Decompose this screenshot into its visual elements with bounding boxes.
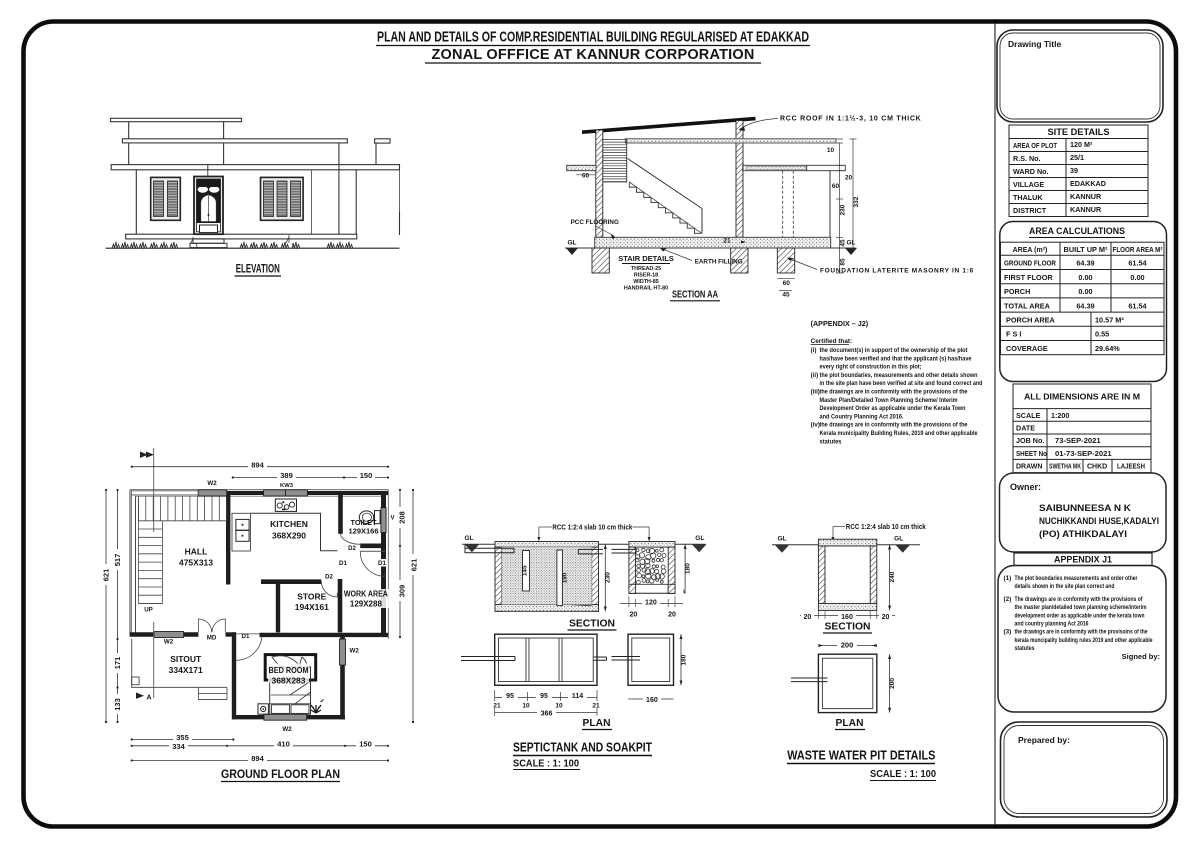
svg-text:AREA OF PLOT: AREA OF PLOT bbox=[1013, 141, 1057, 150]
svg-text:HALL: HALL bbox=[185, 547, 208, 557]
svg-text:details shown in the site plan: details shown in the site plan correct a… bbox=[1015, 583, 1115, 590]
svg-text:WASTE WATER PIT DETAILS: WASTE WATER PIT DETAILS bbox=[787, 749, 935, 763]
svg-text:WARD No.: WARD No. bbox=[1013, 167, 1049, 176]
svg-text:W2: W2 bbox=[282, 726, 292, 733]
svg-text:(3): (3) bbox=[1004, 629, 1012, 636]
svg-text:F S I: F S I bbox=[1006, 330, 1021, 339]
svg-text:1:200: 1:200 bbox=[1051, 411, 1069, 420]
svg-text:171: 171 bbox=[113, 657, 122, 670]
svg-text:SAIBUNNEESA N K: SAIBUNNEESA N K bbox=[1039, 503, 1131, 514]
svg-text:410: 410 bbox=[277, 739, 290, 748]
svg-text:150: 150 bbox=[359, 739, 372, 748]
svg-text:A: A bbox=[146, 695, 151, 702]
svg-text:SECTION AA: SECTION AA bbox=[672, 290, 718, 301]
svg-text:(1): (1) bbox=[1004, 575, 1012, 582]
svg-text:ELEVATION: ELEVATION bbox=[236, 264, 280, 276]
svg-text:WORK AREA: WORK AREA bbox=[344, 590, 388, 599]
svg-text:GL: GL bbox=[894, 536, 903, 543]
svg-text:73-SEP-2021: 73-SEP-2021 bbox=[1055, 436, 1101, 445]
svg-text:the document(s) in support of: the document(s) in support of the owners… bbox=[820, 347, 968, 354]
svg-text:D2: D2 bbox=[348, 546, 356, 552]
svg-text:KANNUR: KANNUR bbox=[1070, 205, 1102, 214]
svg-text:GL: GL bbox=[695, 535, 704, 542]
svg-text:the drawings are in conformity: the drawings are in conformity with the … bbox=[1015, 629, 1148, 636]
svg-text:HANDRAIL HT-80: HANDRAIL HT-80 bbox=[624, 286, 668, 292]
svg-text:ZONAL OFFFICE AT KANNUR CORPO: ZONAL OFFFICE AT KANNUR CORPORATION bbox=[431, 47, 754, 63]
svg-text:GL: GL bbox=[567, 240, 576, 247]
svg-text:334X171: 334X171 bbox=[169, 665, 203, 675]
svg-text:Prepared by:: Prepared by: bbox=[1018, 735, 1070, 745]
svg-text:kerala muncipality building ru: kerala muncipality building rules 2019 a… bbox=[1015, 637, 1153, 644]
svg-text:V: V bbox=[391, 516, 395, 522]
svg-text:in the site plan have been ver: in the site plan have been verified at s… bbox=[820, 380, 983, 387]
svg-text:RCC 1:2:4 slab 10 cm thick: RCC 1:2:4 slab 10 cm thick bbox=[846, 524, 926, 531]
svg-text:64.39: 64.39 bbox=[1076, 259, 1094, 268]
svg-text:180: 180 bbox=[684, 563, 691, 574]
svg-text:Certified that:: Certified that: bbox=[811, 338, 853, 345]
svg-text:PCC FLOORING: PCC FLOORING bbox=[571, 219, 619, 226]
svg-text:366: 366 bbox=[541, 711, 553, 718]
svg-text:309: 309 bbox=[398, 585, 407, 598]
svg-text:JOB No.: JOB No. bbox=[1016, 436, 1044, 445]
svg-text:KITCHEN: KITCHEN bbox=[270, 519, 308, 529]
svg-text:CHKD: CHKD bbox=[1087, 464, 1107, 471]
svg-text:SEPTICTANK AND SOAKPIT: SEPTICTANK AND SOAKPIT bbox=[513, 741, 652, 755]
svg-text:21: 21 bbox=[493, 703, 501, 710]
svg-text:and Country Planning Act 2016.: and Country Planning Act 2016. bbox=[820, 413, 904, 420]
svg-text:the drawings are in conformity: the drawings are in conformity with the … bbox=[820, 422, 968, 429]
svg-text:FIRST FLOOR: FIRST FLOOR bbox=[1004, 273, 1053, 282]
svg-text:EARTH FILLING: EARTH FILLING bbox=[695, 259, 743, 266]
svg-text:STORE: STORE bbox=[297, 592, 326, 602]
svg-text:0.55: 0.55 bbox=[1095, 330, 1109, 339]
svg-text:10: 10 bbox=[555, 703, 563, 710]
svg-text:PLAN: PLAN bbox=[836, 717, 864, 729]
svg-text:Kerala municipality Building R: Kerala municipality Building Rules, 2019… bbox=[820, 430, 978, 437]
svg-text:894: 894 bbox=[251, 461, 264, 470]
svg-text:W2: W2 bbox=[207, 480, 217, 487]
svg-text:200: 200 bbox=[889, 678, 896, 689]
svg-text:20: 20 bbox=[845, 175, 853, 182]
svg-text:Drawing Title: Drawing Title bbox=[1008, 39, 1061, 49]
svg-text:W2: W2 bbox=[350, 648, 360, 655]
svg-text:SECTION: SECTION bbox=[569, 618, 615, 630]
svg-text:R.S. No.: R.S. No. bbox=[1013, 154, 1041, 163]
svg-text:621: 621 bbox=[102, 569, 111, 582]
svg-text:0.00: 0.00 bbox=[1078, 273, 1092, 282]
svg-text:20: 20 bbox=[630, 612, 638, 619]
svg-text:TOTAL AREA: TOTAL AREA bbox=[1004, 301, 1051, 310]
svg-text:45: 45 bbox=[840, 239, 847, 247]
svg-text:NUCHIKKANDI HUSE,KADALYI: NUCHIKKANDI HUSE,KADALYI bbox=[1039, 516, 1159, 527]
svg-text:60: 60 bbox=[783, 280, 791, 287]
svg-text:20: 20 bbox=[804, 614, 812, 621]
svg-text:DRAWN: DRAWN bbox=[1016, 464, 1042, 471]
svg-text:129X288: 129X288 bbox=[350, 600, 383, 609]
svg-text:190: 190 bbox=[562, 572, 569, 583]
svg-text:208: 208 bbox=[398, 511, 407, 524]
svg-text:240: 240 bbox=[889, 571, 896, 582]
svg-text:COVERAGE: COVERAGE bbox=[1006, 344, 1048, 353]
svg-text:517: 517 bbox=[113, 554, 122, 567]
svg-text:200: 200 bbox=[841, 640, 854, 649]
svg-text:AREA (m²): AREA (m²) bbox=[1013, 247, 1048, 254]
svg-text:FLOOR AREA M²: FLOOR AREA M² bbox=[1113, 247, 1164, 254]
svg-text:45: 45 bbox=[782, 292, 790, 299]
svg-text:Master Plan/Detailed Town Plan: Master Plan/Detailed Town Planning Schem… bbox=[820, 397, 958, 404]
svg-text:the drawings are in conformity: the drawings are in conformity with the … bbox=[820, 389, 968, 396]
svg-text:GROUND FLOOR PLAN: GROUND FLOOR PLAN bbox=[221, 767, 340, 781]
svg-text:RCC ROOF IN 1:1½-3, 10 CM THIC: RCC ROOF IN 1:1½-3, 10 CM THICK bbox=[780, 115, 922, 123]
svg-text:SECTION: SECTION bbox=[825, 621, 871, 633]
svg-text:STAIR DETAILS: STAIR DETAILS bbox=[618, 254, 674, 263]
svg-text:20: 20 bbox=[668, 612, 676, 619]
svg-text:21: 21 bbox=[592, 703, 600, 710]
svg-text:BED ROOM: BED ROOM bbox=[269, 665, 309, 675]
svg-text:SCALE : 1: 100: SCALE : 1: 100 bbox=[870, 768, 936, 780]
svg-text:PLAN AND DETAILS OF COMP.RESID: PLAN AND DETAILS OF COMP.RESIDENTIAL BUI… bbox=[377, 29, 809, 46]
svg-text:D1: D1 bbox=[378, 560, 386, 567]
svg-text:D1: D1 bbox=[339, 560, 347, 567]
svg-text:368X290: 368X290 bbox=[272, 531, 306, 541]
svg-text:475X313: 475X313 bbox=[179, 558, 213, 568]
svg-text:statutes: statutes bbox=[820, 438, 843, 445]
svg-text:85: 85 bbox=[840, 258, 847, 266]
svg-text:133: 133 bbox=[113, 698, 122, 711]
svg-text:The plot boundaries measuremen: The plot boundaries measurements and ord… bbox=[1015, 575, 1138, 582]
svg-text:Development Order as applicabl: Development Order as applicable under th… bbox=[820, 405, 966, 412]
svg-text:10: 10 bbox=[827, 147, 835, 154]
svg-text:SHEET No: SHEET No bbox=[1016, 449, 1048, 458]
svg-text:20: 20 bbox=[882, 614, 890, 621]
svg-text:150: 150 bbox=[360, 471, 373, 480]
svg-text:SCALE: SCALE bbox=[1016, 411, 1041, 420]
svg-text:60: 60 bbox=[832, 183, 840, 190]
svg-text:RCC 1:2:4 slab 10 cm thick: RCC 1:2:4 slab 10 cm thick bbox=[552, 525, 632, 532]
svg-text:The drawings are in conformity: The drawings are in conformity with the … bbox=[1015, 596, 1144, 603]
svg-text:60: 60 bbox=[582, 173, 590, 180]
svg-text:SITOUT: SITOUT bbox=[170, 654, 202, 664]
svg-text:0.00: 0.00 bbox=[1130, 273, 1144, 282]
svg-text:21: 21 bbox=[723, 238, 731, 245]
svg-text:GL: GL bbox=[846, 240, 855, 247]
svg-text:statutes: statutes bbox=[1015, 645, 1035, 652]
svg-text:GROUND FLOOR: GROUND FLOOR bbox=[1004, 259, 1057, 268]
svg-text:AREA CALCULATIONS: AREA CALCULATIONS bbox=[1029, 226, 1125, 237]
svg-text:180: 180 bbox=[680, 654, 687, 665]
svg-text:0.00: 0.00 bbox=[1078, 287, 1092, 296]
svg-text:THREAD-25: THREAD-25 bbox=[631, 266, 661, 272]
svg-text:LAJEESH: LAJEESH bbox=[1117, 464, 1145, 471]
svg-text:SCALE : 1: 100: SCALE : 1: 100 bbox=[513, 758, 579, 770]
svg-text:every right of construction in: every right of construction in this plot… bbox=[820, 364, 922, 371]
svg-text:25/1: 25/1 bbox=[1070, 153, 1084, 162]
svg-text:(i): (i) bbox=[811, 347, 817, 354]
svg-text:SITE DETAILS: SITE DETAILS bbox=[1048, 127, 1110, 138]
svg-text:621: 621 bbox=[410, 559, 419, 572]
svg-text:389: 389 bbox=[280, 471, 293, 480]
svg-text:GL: GL bbox=[464, 535, 473, 542]
svg-text:10: 10 bbox=[522, 703, 530, 710]
svg-text:(2): (2) bbox=[1004, 596, 1012, 603]
svg-text:ALL DIMENSIONS ARE IN M: ALL DIMENSIONS ARE IN M bbox=[1024, 393, 1140, 402]
svg-text:160: 160 bbox=[646, 697, 658, 704]
svg-text:W2: W2 bbox=[164, 639, 174, 646]
svg-text:GL: GL bbox=[777, 536, 786, 543]
svg-text:the master plan/detailed town: the master plan/detailed town planning s… bbox=[1015, 604, 1147, 611]
svg-text:(iv): (iv) bbox=[811, 422, 820, 429]
svg-text:DATE: DATE bbox=[1016, 424, 1035, 433]
svg-text:332: 332 bbox=[853, 196, 860, 207]
svg-text:development order as applicabl: development order as applicable under th… bbox=[1015, 612, 1145, 619]
svg-text:(PO) ATHIKDALAYI: (PO) ATHIKDALAYI bbox=[1039, 529, 1127, 540]
svg-text:BUILT UP M²: BUILT UP M² bbox=[1064, 247, 1109, 254]
svg-text:D2: D2 bbox=[325, 575, 333, 581]
svg-text:39: 39 bbox=[1070, 166, 1078, 175]
svg-text:UP: UP bbox=[144, 607, 153, 614]
svg-text:VILLAGE: VILLAGE bbox=[1013, 180, 1044, 189]
svg-text:PLAN: PLAN bbox=[583, 717, 611, 729]
svg-text:(ii): (ii) bbox=[811, 372, 819, 379]
svg-text:EDAKKAD: EDAKKAD bbox=[1070, 179, 1106, 188]
svg-text:10.57 M²: 10.57 M² bbox=[1095, 316, 1124, 325]
svg-text:KANNUR: KANNUR bbox=[1070, 192, 1102, 201]
svg-text:(iii): (iii) bbox=[811, 389, 820, 396]
svg-text:FOUNDATION LATERITE MASONRY IN: FOUNDATION LATERITE MASONRY IN 1:6 bbox=[820, 268, 974, 275]
svg-text:120: 120 bbox=[645, 600, 657, 607]
svg-text:29.64%: 29.64% bbox=[1095, 344, 1120, 353]
svg-text:368X283: 368X283 bbox=[271, 676, 305, 686]
svg-text:114: 114 bbox=[572, 693, 583, 700]
svg-text:95: 95 bbox=[540, 693, 548, 700]
svg-text:DISTRICT: DISTRICT bbox=[1013, 206, 1047, 215]
svg-text:61.54: 61.54 bbox=[1128, 259, 1147, 268]
svg-text:D1: D1 bbox=[242, 633, 250, 640]
svg-text:95: 95 bbox=[506, 693, 514, 700]
svg-text:129X166: 129X166 bbox=[349, 527, 379, 536]
svg-text:SWETHA MK: SWETHA MK bbox=[1049, 464, 1081, 471]
svg-text:230: 230 bbox=[605, 572, 612, 583]
svg-text:61.54: 61.54 bbox=[1128, 301, 1147, 310]
svg-text:the plot boundaries, measureme: the plot boundaries, measurements and ot… bbox=[820, 372, 978, 379]
svg-text:KW3: KW3 bbox=[280, 483, 294, 489]
svg-text:RISER-18: RISER-18 bbox=[634, 273, 658, 279]
svg-text:355: 355 bbox=[176, 733, 189, 742]
svg-text:194X161: 194X161 bbox=[295, 602, 329, 612]
svg-text:THALUK: THALUK bbox=[1013, 193, 1043, 202]
svg-text:64.39: 64.39 bbox=[1076, 301, 1094, 310]
svg-text:MD: MD bbox=[207, 635, 217, 642]
svg-text:PORCH: PORCH bbox=[1004, 287, 1030, 296]
svg-text:120 M²: 120 M² bbox=[1070, 140, 1093, 149]
svg-text:has/have been verified and tha: has/have been verified and that the appl… bbox=[820, 355, 972, 362]
svg-text:Owner:: Owner: bbox=[1010, 482, 1041, 492]
svg-text:01-73-SEP-2021: 01-73-SEP-2021 bbox=[1055, 449, 1112, 458]
svg-text:230: 230 bbox=[840, 204, 847, 215]
svg-text:334: 334 bbox=[172, 742, 185, 751]
svg-text:(APPENDIX – J2): (APPENDIX – J2) bbox=[811, 319, 869, 328]
svg-text:Signed by:: Signed by: bbox=[1122, 652, 1160, 661]
svg-text:APPENDIX J1: APPENDIX J1 bbox=[1054, 555, 1112, 565]
svg-text:894: 894 bbox=[251, 754, 264, 763]
svg-text:PORCH AREA: PORCH AREA bbox=[1006, 316, 1056, 325]
svg-text:WIDTH-85: WIDTH-85 bbox=[633, 279, 658, 285]
svg-text:and country planning Act 2016: and country planning Act 2016 bbox=[1015, 621, 1089, 628]
svg-text:145: 145 bbox=[522, 565, 529, 576]
